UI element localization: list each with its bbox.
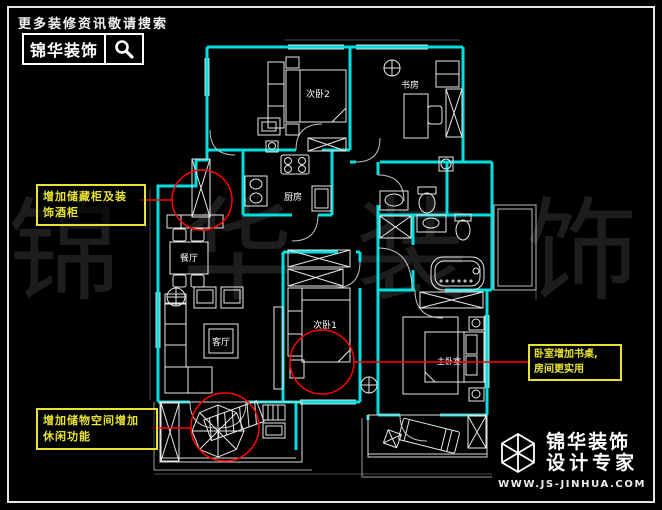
room-label-kitchen: 厨房 (284, 191, 302, 203)
note-line: 增加储藏柜及装 (43, 189, 139, 205)
bedroom2-furniture (268, 57, 346, 151)
brand-search-box[interactable]: 锦华装饰 (22, 33, 144, 65)
note-line: 饰酒柜 (43, 205, 139, 221)
note-leisure: 增加储物空间增加 休闲功能 (36, 408, 158, 450)
search-icon (106, 35, 142, 63)
room-label-bedroom1: 次卧1 (313, 319, 337, 331)
balcony-outlines (154, 402, 492, 477)
footer-brand-block: 锦华装饰 设计专家 WWW.JS-JINHUA.COM (498, 432, 646, 490)
bedroom1-furniture (288, 250, 350, 378)
header-tagline: 更多装修资讯敬请搜索 (18, 13, 168, 32)
room-label-dining: 餐厅 (180, 252, 198, 264)
note-line: 增加储物空间增加 (43, 413, 151, 429)
footer-url[interactable]: WWW.JS-JINHUA.COM (498, 479, 646, 490)
room-label-master: 主卧室 (437, 356, 461, 366)
annotation-circle-cabinet (172, 170, 232, 230)
hall-light (361, 377, 377, 393)
room-label-living: 客厅 (212, 336, 230, 348)
ac-platform (494, 205, 536, 290)
study-furniture (384, 60, 462, 138)
cube-logo-icon (498, 432, 538, 474)
note-line: 房间更实用 (534, 363, 616, 378)
note-line: 卧室增加书桌, (534, 348, 616, 363)
footer-brand-name: 锦华装饰 (546, 432, 638, 453)
room-label-study: 书房 (401, 79, 419, 91)
note-line: 休闲功能 (43, 429, 151, 445)
room-label-bedroom2: 次卧2 (306, 88, 330, 100)
brand-name: 锦华装饰 (24, 35, 106, 63)
master-furniture (403, 292, 484, 401)
bathroom-fixtures (380, 157, 484, 290)
poster-canvas: 锦 华 装 饰 (0, 0, 662, 510)
left-balcony-furniture (161, 401, 285, 461)
right-balcony-furniture (383, 416, 486, 453)
note-desk: 卧室增加书桌, 房间更实用 (528, 344, 622, 381)
storage-cabinet (167, 159, 223, 228)
note-storage-wine: 增加储藏柜及装 饰酒柜 (36, 184, 146, 226)
footer-slogan: 设计专家 (546, 453, 638, 474)
